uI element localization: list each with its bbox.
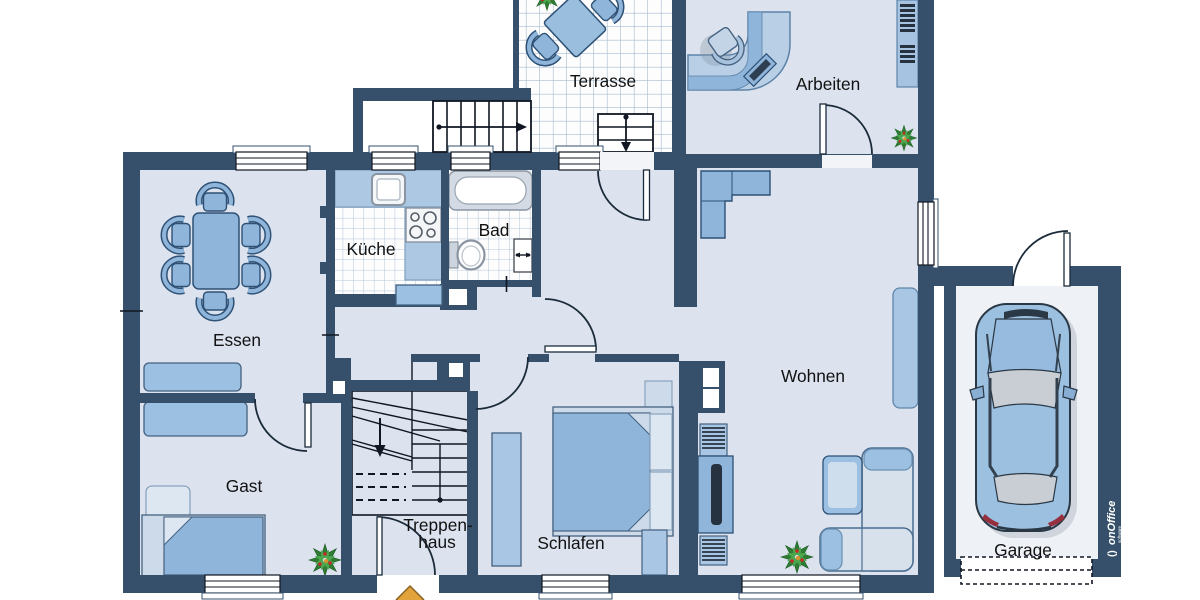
svg-text:Arbeiten: Arbeiten [796, 74, 860, 94]
svg-text:Schlafen: Schlafen [537, 533, 604, 553]
svg-text:Wohnen: Wohnen [781, 366, 845, 386]
svg-text:Essen: Essen [213, 330, 261, 350]
svg-text:(): () [1107, 550, 1118, 557]
svg-text:software: software [1117, 525, 1122, 543]
svg-text:Bad: Bad [479, 220, 510, 240]
svg-text:haus: haus [418, 532, 456, 552]
svg-text:Garage: Garage [994, 540, 1052, 560]
svg-text:Gast: Gast [226, 476, 263, 496]
svg-text:Küche: Küche [346, 239, 395, 259]
svg-text:Terrasse: Terrasse [570, 71, 636, 91]
